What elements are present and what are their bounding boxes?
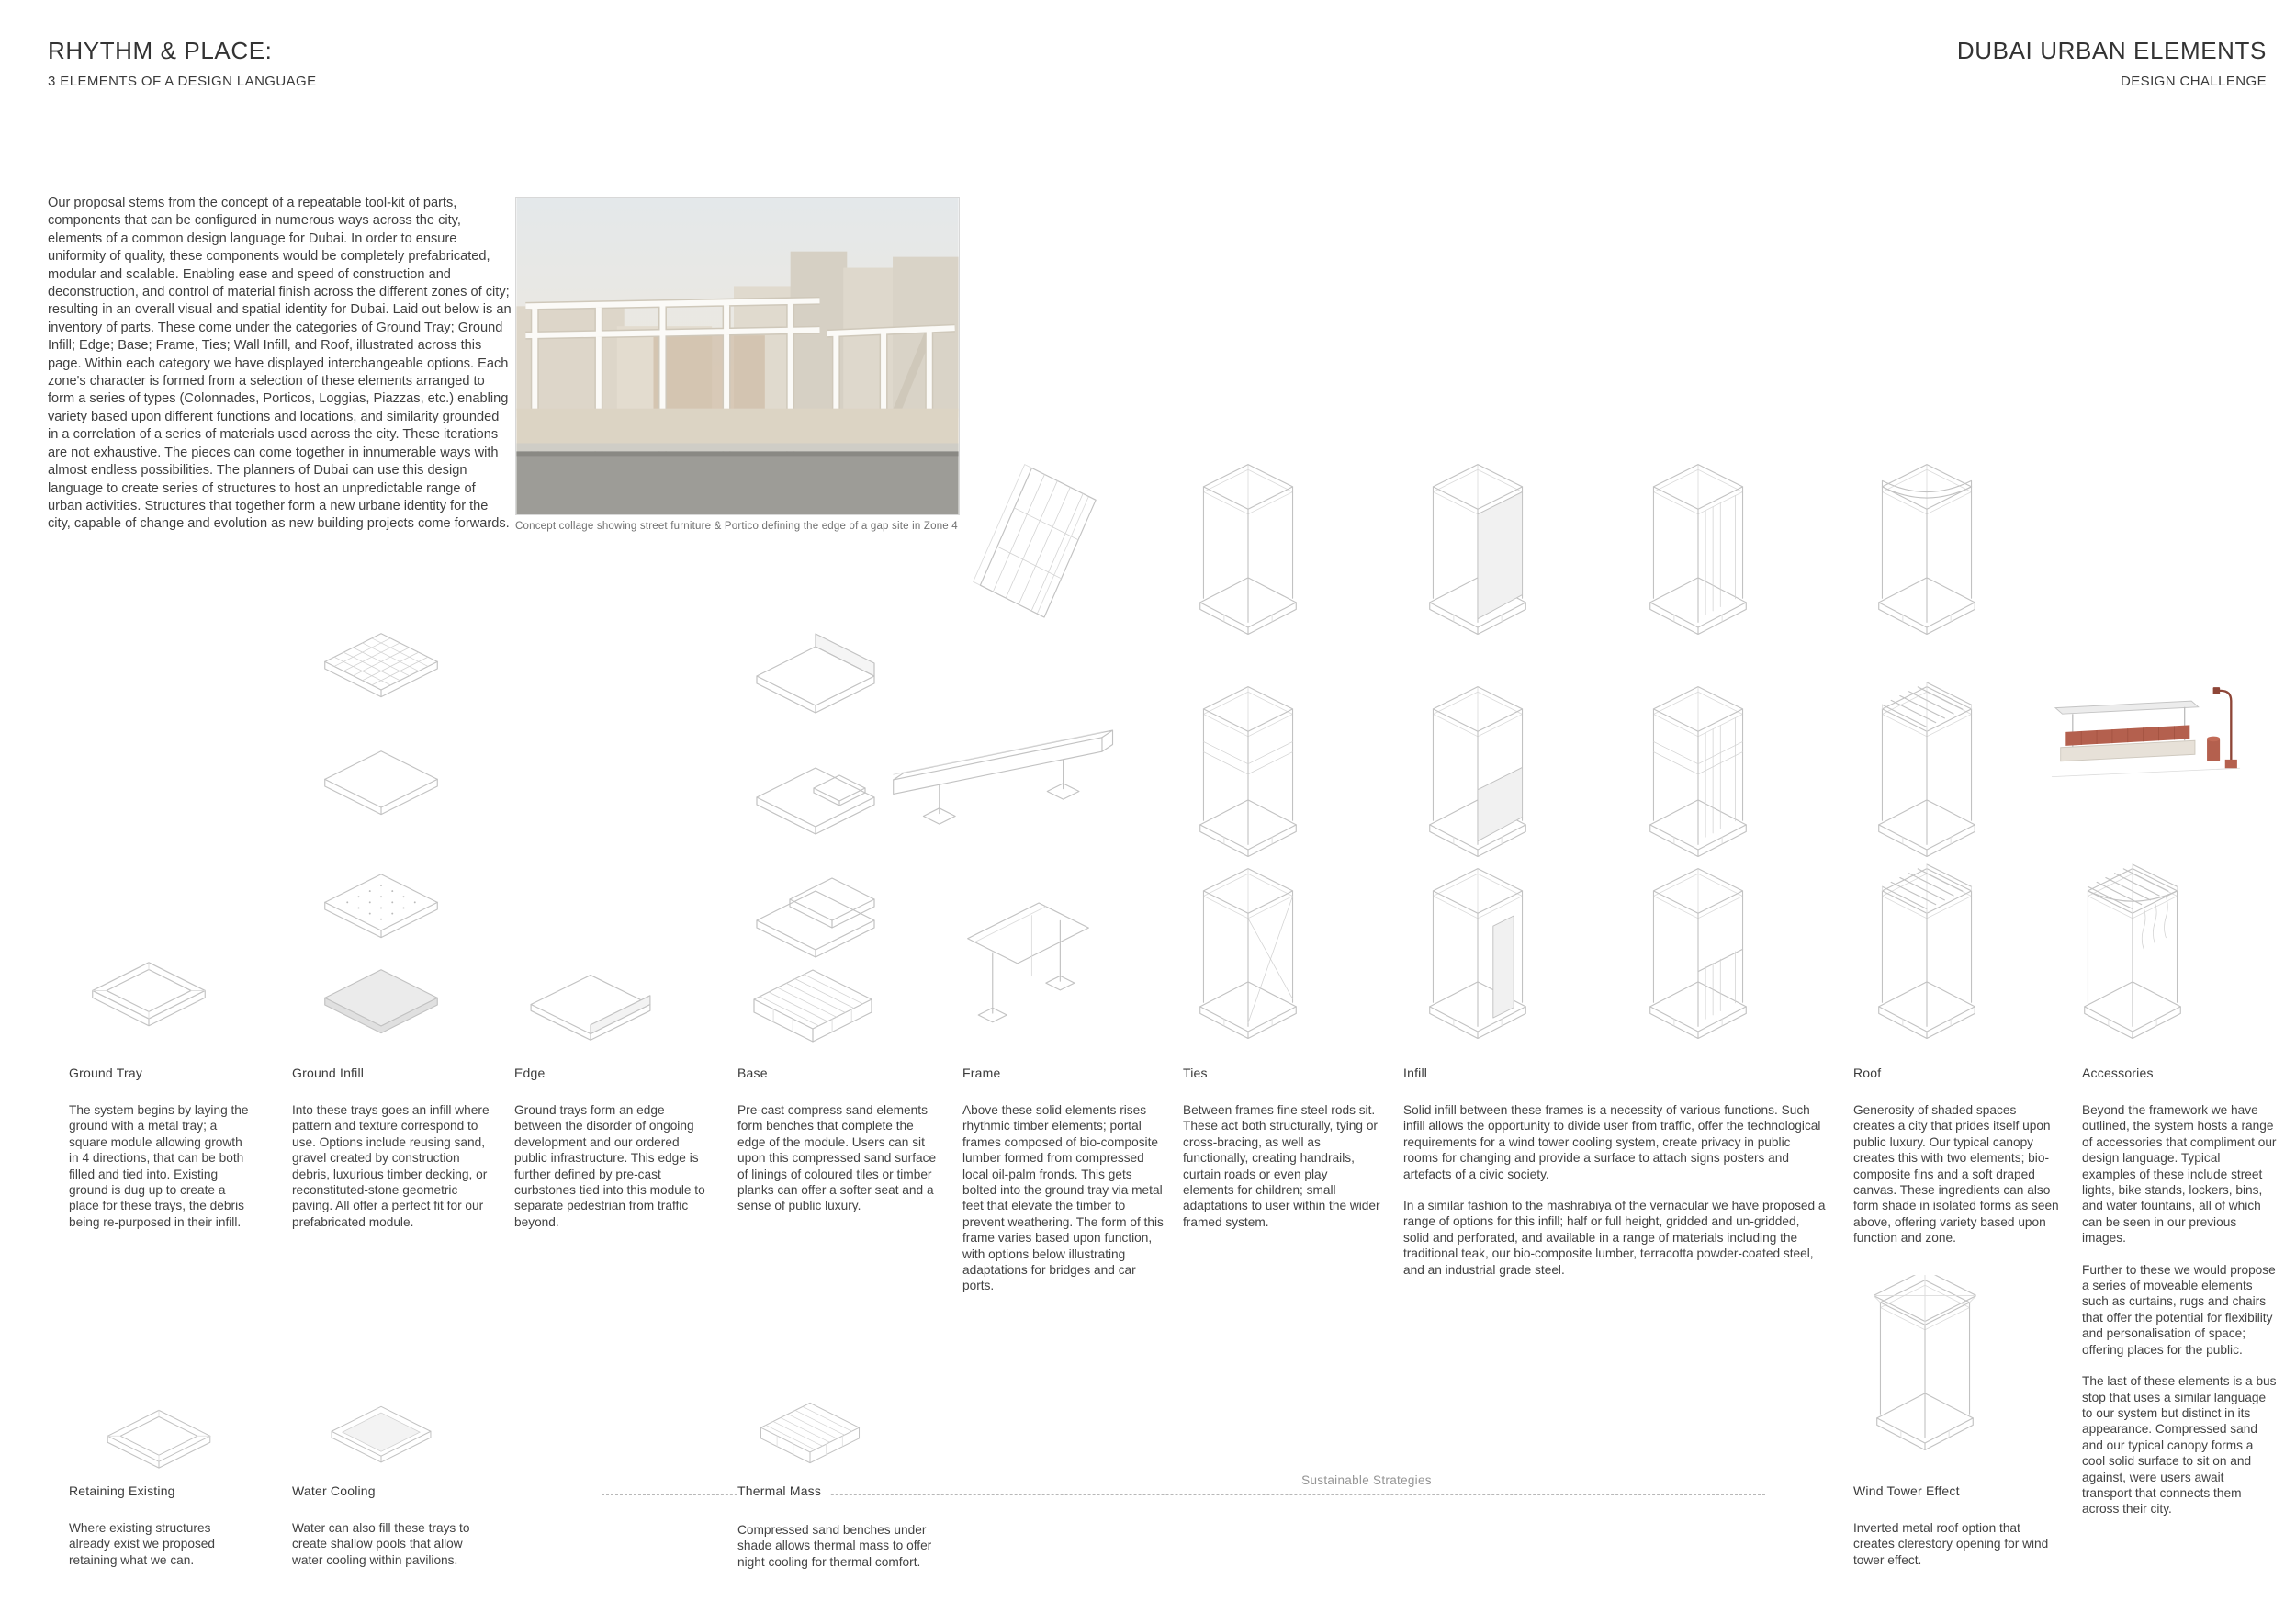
diagram-roof-fins: [1875, 682, 1978, 863]
category-text: Pre-cast compress sand elements form ben…: [737, 1102, 944, 1214]
diagram-roof-canvas: [1875, 459, 1978, 641]
diagram-wall-grid-half: [1647, 863, 1750, 1045]
diagram-thermal-bench: [751, 1391, 869, 1475]
section-divider: [44, 1054, 2268, 1054]
intro-paragraph: Our proposal stems from the concept of a…: [48, 195, 512, 534]
diagram-water-pool: [327, 1398, 435, 1477]
page-title: RHYTHM & PLACE:: [48, 37, 316, 65]
strategy-text: Where existing structures already exist …: [69, 1520, 253, 1568]
diagram-ties-handrail: [1197, 682, 1300, 863]
diagram-base-steps: [751, 858, 880, 961]
diagram-base-pillow: [751, 739, 880, 841]
diagram-frame-bridge: [886, 705, 1125, 829]
category-label: Frame: [962, 1066, 1166, 1080]
category-text: Solid infill between these frames is a n…: [1403, 1102, 1828, 1182]
diagram-wall-grid-full: [1647, 459, 1750, 641]
strategy-label: Wind Tower Effect: [1853, 1483, 2060, 1498]
category-label: Edge: [514, 1066, 709, 1080]
diagram-infill-deck: [320, 742, 443, 830]
category-text: Between frames fine steel rods sit. Thes…: [1183, 1102, 1380, 1230]
strategy-wind-tower: Wind Tower Effect Inverted metal roof op…: [1853, 1483, 2060, 1584]
strategies-label: Sustainable Strategies: [1292, 1473, 1441, 1487]
strategy-label: Water Cooling: [292, 1483, 490, 1498]
page-subtitle: 3 ELEMENTS OF A DESIGN LANGUAGE: [48, 73, 316, 89]
challenge-title: DUBAI URBAN ELEMENTS: [1957, 37, 2267, 65]
strategy-label: Retaining Existing: [69, 1483, 253, 1498]
strategy-retaining-existing: Retaining Existing Where existing struct…: [69, 1483, 253, 1584]
category-text: The system begins by laying the ground w…: [69, 1102, 253, 1230]
strategies-section: Sustainable Strategies: [1292, 1472, 1441, 1489]
category-ties: Ties Between frames fine steel rods sit.…: [1183, 1066, 1380, 1246]
category-text-3: The last of these elements is a bus stop…: [2082, 1373, 2277, 1517]
category-text-2: Further to these we would propose a seri…: [2082, 1262, 2277, 1358]
category-edge: Edge Ground trays form an edge between t…: [514, 1066, 709, 1246]
diagram-roof-fins-2: [1875, 863, 1978, 1045]
poster-page: RHYTHM & PLACE: 3 ELEMENTS OF A DESIGN L…: [0, 0, 2296, 1624]
diagram-ground-tray: [87, 955, 210, 1043]
category-text: Into these trays goes an infill where pa…: [292, 1102, 490, 1230]
category-label: Accessories: [2082, 1066, 2277, 1080]
category-ground-infill: Ground Infill Into these trays goes an i…: [292, 1066, 490, 1246]
category-accessories: Accessories Beyond the framework we have…: [2082, 1066, 2277, 1533]
category-infill: Infill Solid infill between these frames…: [1403, 1066, 1828, 1293]
diagram-ties-crossbrace: [1197, 863, 1300, 1045]
challenge-subtitle: DESIGN CHALLENGE: [1957, 73, 2267, 89]
diagram-roof-curtain: [2081, 863, 2184, 1045]
diagram-base-slats: [748, 955, 877, 1056]
category-roof: Roof Generosity of shaded spaces creates…: [1853, 1066, 2060, 1262]
diagram-retaining-tray: [103, 1404, 215, 1484]
category-label: Ground Infill: [292, 1066, 490, 1080]
category-label: Ground Tray: [69, 1066, 253, 1080]
collage-caption: Concept collage showing street furniture…: [515, 521, 993, 532]
category-ground-tray: Ground Tray The system begins by laying …: [69, 1066, 253, 1246]
category-label: Base: [737, 1066, 944, 1080]
header-right: DUBAI URBAN ELEMENTS DESIGN CHALLENGE: [1957, 37, 2267, 89]
diagram-base-backrest: [751, 617, 880, 720]
category-text: Generosity of shaded spaces creates a ci…: [1853, 1102, 2060, 1246]
header-left: RHYTHM & PLACE: 3 ELEMENTS OF A DESIGN L…: [48, 37, 316, 89]
diagram-frame-carport: [957, 874, 1099, 1043]
category-label: Infill: [1403, 1066, 1828, 1080]
category-frame: Frame Above these solid elements rises r…: [962, 1066, 1166, 1310]
strategy-thermal-mass: Thermal Mass Compressed sand benches und…: [737, 1483, 944, 1585]
category-base: Base Pre-cast compress sand elements for…: [737, 1066, 944, 1230]
diagram-wall-infill-half: [1426, 682, 1529, 863]
diagram-wall-infill-full: [1426, 459, 1529, 641]
diagram-edge-curb: [523, 963, 658, 1047]
diagram-wind-tower: [1874, 1275, 1976, 1457]
category-text-2: In a similar fashion to the mashrabiya o…: [1403, 1198, 1828, 1278]
category-text: Beyond the framework we have outlined, t…: [2082, 1102, 2277, 1246]
category-label: Roof: [1853, 1066, 2060, 1080]
concept-collage: [515, 197, 960, 515]
strategy-text: Water can also fill these trays to creat…: [292, 1520, 490, 1568]
strategy-water-cooling: Water Cooling Water can also fill these …: [292, 1483, 490, 1584]
diagram-infill-sand: [320, 865, 443, 953]
strategy-text: Compressed sand benches under shade allo…: [737, 1522, 944, 1570]
category-text: Ground trays form an edge between the di…: [514, 1102, 709, 1230]
diagram-ties-open: [1197, 459, 1300, 641]
category-label: Ties: [1183, 1066, 1380, 1080]
strategy-text: Inverted metal roof option that creates …: [1853, 1520, 2060, 1568]
diagram-wall-infill-door: [1426, 863, 1529, 1045]
diagram-wall-grid-rails: [1647, 682, 1750, 863]
strategy-label: Thermal Mass: [737, 1483, 830, 1498]
diagram-accessories: [2043, 675, 2249, 813]
diagram-infill-solid: [320, 961, 443, 1049]
category-text: Above these solid elements rises rhythmi…: [962, 1102, 1166, 1294]
diagram-infill-paving: [320, 625, 443, 713]
collage-graphic: [516, 198, 959, 514]
diagram-frame-truss: [955, 454, 1107, 645]
